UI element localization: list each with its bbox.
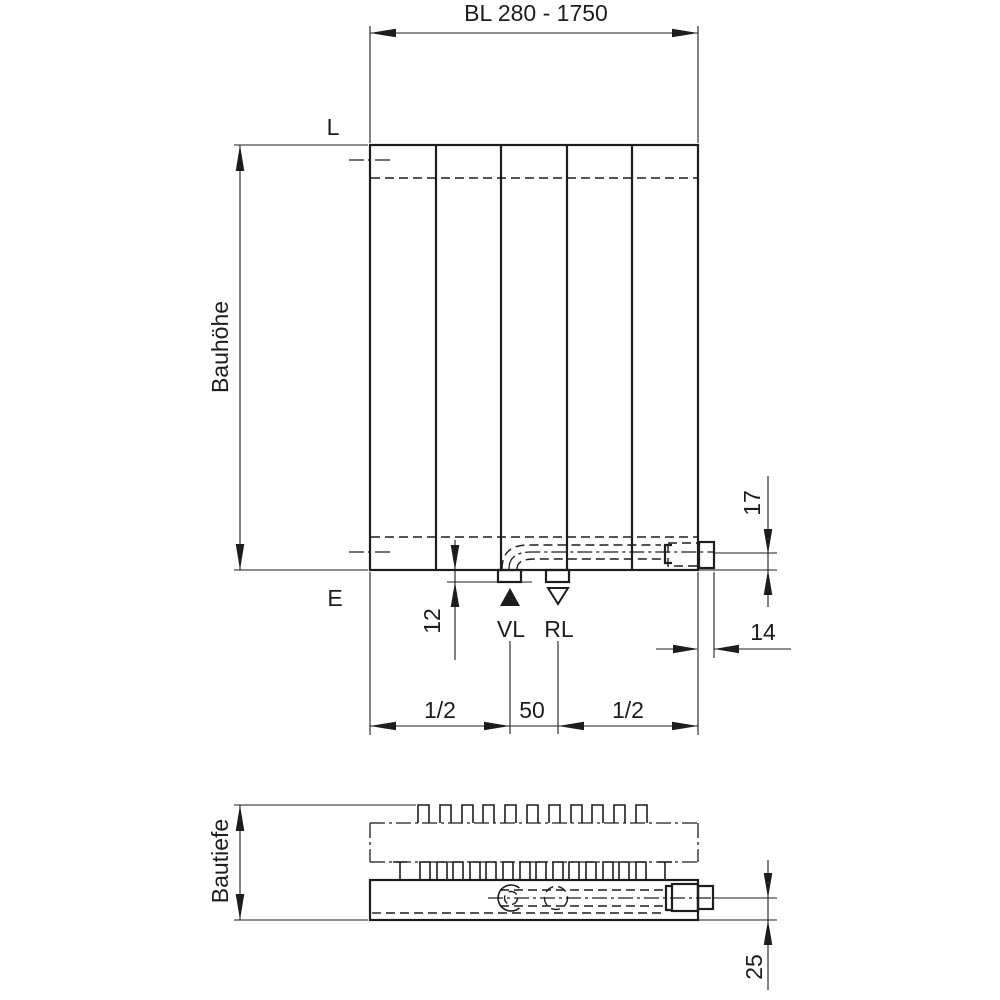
connection-position-dimensions: 1/2 50 1/2 bbox=[370, 572, 698, 735]
radiator-body bbox=[349, 145, 698, 570]
bottom-reference-label: E bbox=[327, 585, 342, 611]
return-label: RL bbox=[544, 616, 574, 642]
arrow-right-icon bbox=[673, 645, 698, 654]
arrow-down-icon bbox=[451, 545, 460, 570]
panel-outline bbox=[370, 880, 698, 920]
fin-row-front bbox=[420, 862, 646, 880]
convector-fins bbox=[393, 805, 672, 880]
bottom-view: Bautiefe bbox=[207, 805, 777, 990]
arrow-left-icon bbox=[370, 722, 396, 731]
arrow-down-icon bbox=[236, 894, 245, 920]
supply-stub bbox=[498, 570, 521, 582]
arrow-down-icon bbox=[764, 529, 773, 554]
pipe-hidden-line-upper bbox=[502, 545, 661, 569]
radiator-dimension-drawing: BL 280 - 1750 Bauhöhe L E bbox=[0, 0, 1000, 1000]
arrow-left-icon bbox=[558, 722, 584, 731]
length-dimension-text: BL 280 - 1750 bbox=[464, 0, 608, 26]
depth-dimension-text: Bautiefe bbox=[207, 819, 233, 903]
radiator-outline bbox=[370, 145, 698, 570]
arrow-down-icon bbox=[764, 873, 773, 898]
drawing-canvas: BL 280 - 1750 Bauhöhe L E bbox=[0, 0, 1000, 1000]
pipe-axis-front-dimension: 25 bbox=[741, 860, 772, 990]
panel-section bbox=[370, 880, 777, 920]
arrow-up-icon bbox=[764, 570, 773, 595]
top-reference-label: L bbox=[327, 114, 340, 140]
bottom-connections bbox=[498, 542, 777, 582]
arrow-up-icon bbox=[236, 145, 245, 171]
pipe-axis-dimension: 17 bbox=[739, 476, 772, 607]
height-dimension-text: Bauhöhe bbox=[207, 301, 233, 393]
arrow-right-icon bbox=[484, 722, 510, 731]
arrow-up-icon bbox=[236, 805, 245, 831]
outlet-offset-dimension: 14 bbox=[656, 572, 791, 735]
supply-label: VL bbox=[497, 616, 525, 642]
pipe-hidden-line-lower bbox=[517, 559, 661, 569]
pipe-axis-front-dimension-text: 25 bbox=[741, 954, 767, 980]
arrow-down-icon bbox=[236, 544, 245, 570]
fin-bracket-left bbox=[393, 862, 407, 879]
arrow-right-icon bbox=[672, 29, 698, 38]
right-half-dimension-text: 1/2 bbox=[612, 697, 644, 723]
return-marker-icon bbox=[548, 588, 568, 604]
length-dimension: BL 280 - 1750 bbox=[370, 0, 698, 143]
arrow-up-icon bbox=[451, 582, 460, 607]
spacing-dimension-text: 50 bbox=[519, 697, 545, 723]
front-view: BL 280 - 1750 Bauhöhe L E bbox=[207, 0, 791, 735]
fin-row-back bbox=[418, 805, 647, 823]
connector-hidden-body bbox=[668, 543, 699, 566]
return-stub bbox=[546, 570, 569, 582]
outlet-offset-dimension-text: 14 bbox=[750, 619, 776, 645]
fin-bracket-right bbox=[658, 862, 672, 879]
pipe-axis-dimension-text: 17 bbox=[739, 490, 765, 516]
stub-depth-dimension-text: 12 bbox=[419, 608, 445, 634]
height-dimension: Bauhöhe L E bbox=[207, 114, 368, 611]
supply-marker-icon bbox=[500, 588, 520, 606]
left-half-dimension-text: 1/2 bbox=[424, 697, 456, 723]
convector-phantom-outline bbox=[370, 823, 698, 862]
side-outlet-connector bbox=[699, 542, 714, 568]
arrow-up-icon bbox=[764, 920, 773, 945]
arrow-right-icon bbox=[672, 722, 698, 731]
arrow-left-icon bbox=[370, 29, 396, 38]
arrow-left-icon bbox=[714, 645, 739, 654]
